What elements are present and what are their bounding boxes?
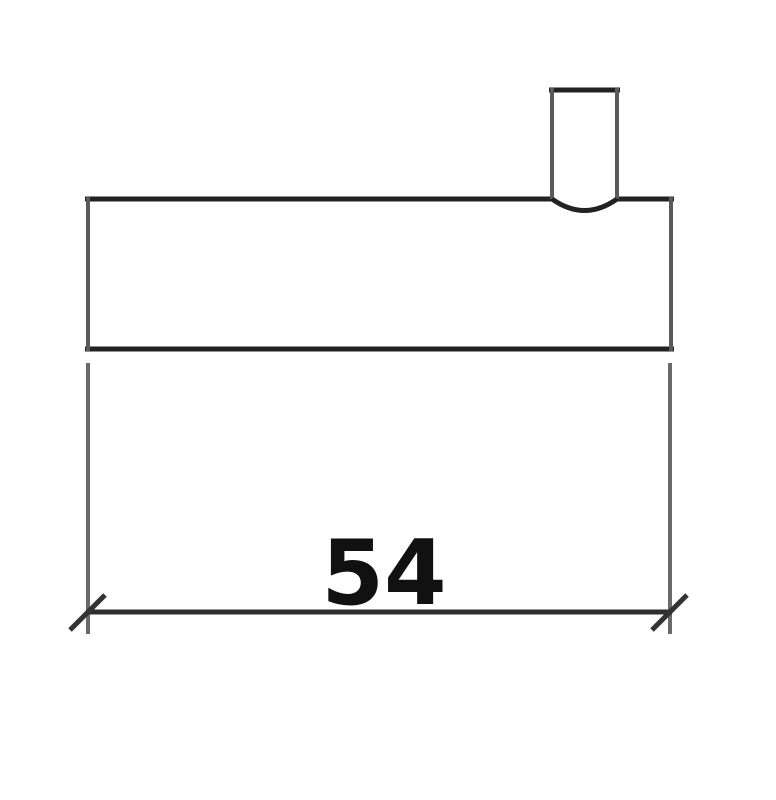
tab-bottom-arc	[552, 199, 617, 211]
top-tab-outline	[549, 88, 620, 211]
technical-drawing-canvas: 54	[0, 0, 776, 800]
part-section-drawing: 54	[0, 0, 776, 800]
part-body-outline	[85, 197, 674, 351]
dimension-label: 54	[321, 521, 446, 626]
